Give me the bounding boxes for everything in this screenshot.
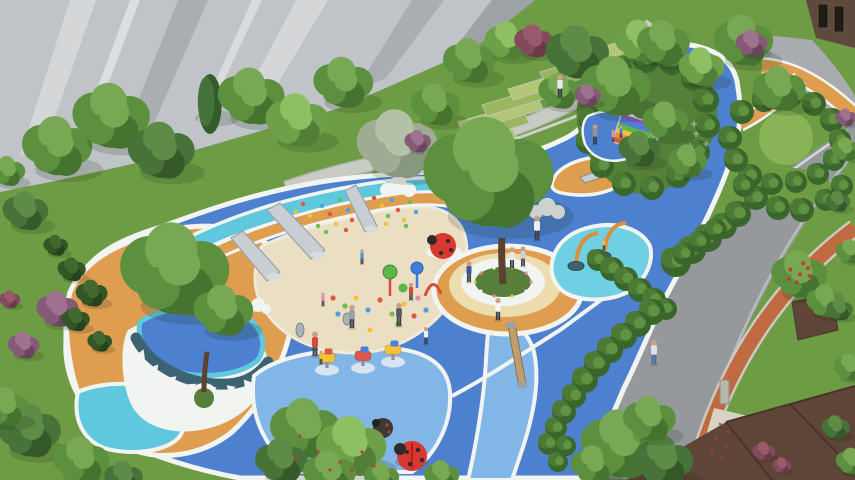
- slide-end: [267, 273, 281, 281]
- sand-toy: [353, 295, 358, 300]
- hedge-blob: [733, 175, 755, 197]
- sand-toy: [377, 297, 382, 302]
- scene-canvas: [0, 0, 855, 480]
- hedge-blob: [730, 100, 754, 124]
- climbing-hold: [324, 230, 328, 234]
- spray-disc-green-small: [399, 284, 408, 293]
- climbing-hold: [404, 224, 408, 228]
- climbing-hold: [344, 228, 348, 232]
- hedge-blob: [807, 163, 829, 185]
- sand-toy: [367, 327, 372, 332]
- climbing-hold: [384, 222, 388, 226]
- hedge-blob: [640, 176, 664, 200]
- hedge-blob: [612, 172, 636, 196]
- beam-end: [506, 322, 516, 328]
- shrub-flower: [372, 464, 375, 467]
- climbing-hold: [372, 196, 376, 200]
- hedge-blob: [766, 196, 790, 220]
- climbing-hold: [316, 224, 320, 228]
- spray-disc-green: [383, 265, 397, 279]
- shrub-flower: [350, 468, 353, 471]
- central-tree-trunk: [502, 238, 503, 284]
- hedge-blob: [548, 452, 568, 472]
- paver-dot: [711, 449, 713, 451]
- sand-toy: [365, 307, 370, 312]
- hedge-blob: [724, 148, 748, 172]
- climbing-hold: [308, 214, 312, 218]
- slide-end: [311, 251, 325, 259]
- shrub-flower: [328, 468, 331, 471]
- sand-toy: [423, 307, 428, 312]
- townhouse-window: [834, 6, 844, 32]
- climbing-hold: [294, 210, 298, 214]
- sand-toy: [389, 311, 394, 316]
- hedge-blob: [705, 219, 727, 241]
- climbing-hold: [320, 204, 324, 208]
- shrub-flower: [294, 456, 297, 459]
- west-tree-trunk: [204, 352, 207, 392]
- sand-toy: [330, 295, 335, 300]
- flower: [510, 294, 513, 297]
- climbing-hold: [390, 198, 394, 202]
- sand-toy: [411, 313, 416, 318]
- climbing-hold: [414, 210, 418, 214]
- paver-dot: [715, 437, 717, 439]
- climbing-hold: [350, 218, 354, 222]
- flower: [479, 271, 482, 274]
- flower: [524, 271, 527, 274]
- climbing-hold: [380, 204, 384, 208]
- sand-toy: [415, 295, 420, 300]
- gate-pillar: [720, 380, 729, 404]
- hedge-blob: [696, 114, 720, 138]
- water-bucket: [568, 262, 584, 271]
- climbing-hold: [328, 212, 332, 216]
- climbing-hold: [301, 202, 305, 206]
- shrub-flower: [298, 434, 301, 437]
- climbing-hold: [338, 198, 342, 202]
- flower: [473, 280, 476, 283]
- sand-toy: [401, 301, 406, 306]
- metal-sculpture: [296, 323, 304, 337]
- climbing-hold: [408, 200, 412, 204]
- beam-end: [517, 382, 527, 388]
- spray-disc-blue: [411, 262, 423, 274]
- climbing-hold: [386, 214, 390, 218]
- flower: [529, 280, 532, 283]
- climbing-hold: [334, 222, 338, 226]
- hedge-blob: [790, 198, 814, 222]
- flower: [524, 289, 527, 292]
- flower: [492, 294, 495, 297]
- paver-dot: [721, 457, 723, 459]
- slide-end: [365, 226, 377, 233]
- flower: [492, 266, 495, 269]
- climbing-hold: [346, 208, 350, 212]
- climbing-hold: [396, 208, 400, 212]
- sand-toy: [335, 311, 340, 316]
- circular-lawn: [759, 111, 813, 165]
- playground-rendering: [0, 0, 855, 480]
- townhouse-window: [818, 4, 828, 28]
- sand-toy: [342, 303, 347, 308]
- hedge-blob: [693, 87, 719, 113]
- paver-dot: [719, 423, 721, 425]
- climbing-hold: [402, 218, 406, 222]
- flower: [479, 289, 482, 292]
- shrub-flower: [316, 450, 319, 453]
- paver-dot: [725, 445, 727, 447]
- hedge-blob: [718, 126, 742, 150]
- shrub-flower: [338, 460, 341, 463]
- paver-dot: [727, 431, 729, 433]
- shrub-flower: [360, 450, 363, 453]
- hedge-blob: [785, 171, 807, 193]
